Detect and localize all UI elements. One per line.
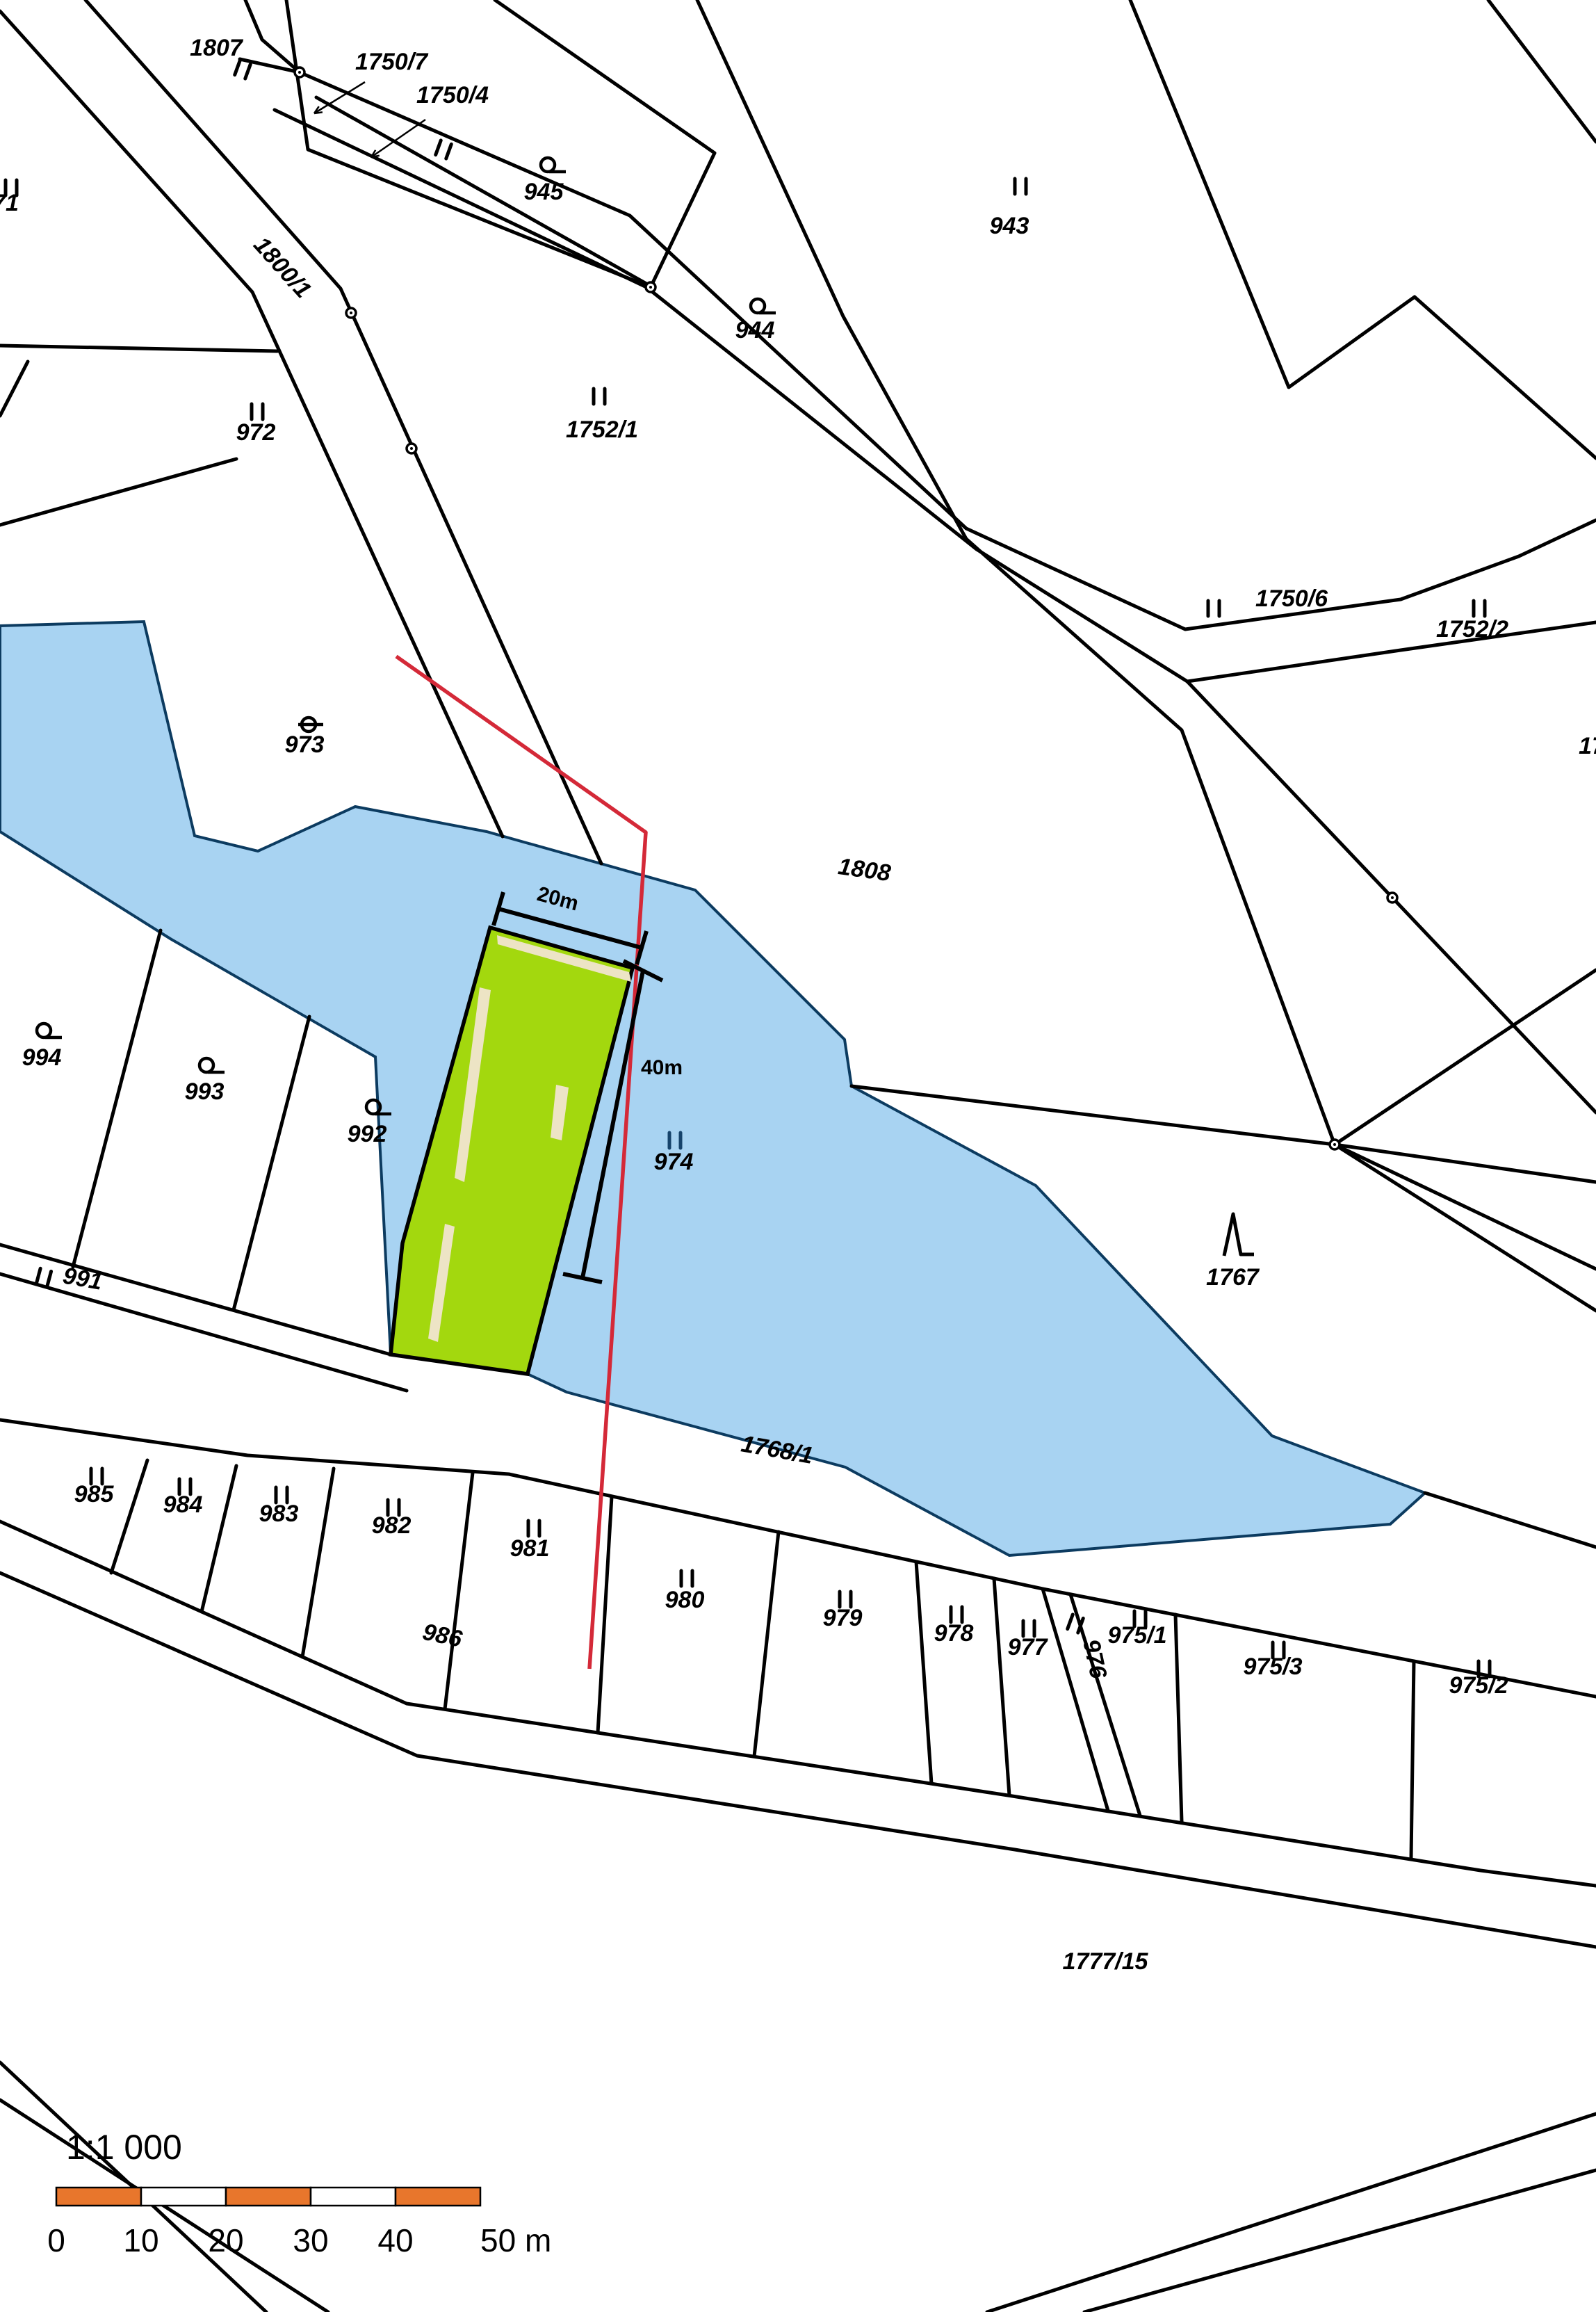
land-use-ii-icon [436,140,452,159]
parcel-label-1752-2: 1752/2 [1436,616,1508,642]
parcel-label-974: 974 [654,1149,694,1175]
boundary-line-east-2 [1335,970,1596,1145]
label-leader-arrow [371,120,425,157]
parcel-label-985: 985 [74,1481,115,1507]
parcel-972-west-boundary [0,362,28,416]
parcel-label-71: 71 [0,190,19,216]
parcel-945-boundary [286,0,715,287]
road-991-bottom-line [0,1274,407,1391]
scale-tick-label: 40 [377,2222,413,2258]
scale-bar-segment [226,2188,311,2206]
divider-979-978 [916,1562,931,1784]
divider-985-984 [111,1460,147,1573]
parcel-label-1807: 1807 [190,35,244,61]
parcel-label-943: 943 [990,213,1029,239]
parcel-label-976: 976 [1077,1637,1111,1681]
scale-tick-label: 50 m [480,2222,551,2258]
strip-1768-1-top-right-line [1425,1493,1596,1547]
scale-tick-label: 30 [293,2222,328,2258]
strip-1750-divider [316,97,646,284]
divider-982-981 [445,1473,473,1709]
orchard-symbol-icon [37,1024,62,1037]
survey-point-icon [646,282,655,292]
scale-bar-segment [141,2188,226,2206]
parcel-label-994: 994 [22,1044,62,1071]
cadastral-map-page: 20m40m 18071750/71750/4945944943711800/1… [0,0,1596,2312]
orchard-symbol-icon [541,158,566,172]
parcel-label-979: 979 [823,1605,863,1631]
road-1808-left-line [697,0,966,539]
dimension-label: 40m [641,1056,683,1079]
parcel-993-992-divider [234,1017,309,1310]
parcel-label-1750-7: 1750/7 [355,49,429,75]
parcel-label-945: 945 [524,179,564,205]
scale-tick-label: 20 [208,2222,243,2258]
parcel-label-1800-1: 1800/1 [248,232,316,303]
parcel-label-975-1: 975/1 [1107,1622,1166,1649]
parcel-label-978: 978 [934,1620,974,1647]
parcel-label-1808: 1808 [836,853,892,887]
parcel-label-973: 973 [285,731,325,758]
land-use-ii-icon [235,60,251,79]
parcel-label-1752-1: 1752/1 [566,417,638,443]
divider-978-977 [994,1578,1009,1795]
scale-bar-segment [311,2188,396,2206]
parcel-label-975-3: 975/3 [1243,1654,1302,1680]
divider-980-979 [754,1532,779,1756]
bottom-right-road-line-1 [987,2114,1596,2312]
scale-bar-segment [396,2188,480,2206]
divider-977-976 [1043,1589,1108,1811]
land-use-ii-icon [1015,179,1026,194]
land-use-ii-icon [252,404,263,419]
road-991-top-line [0,1245,391,1355]
survey-point-icon [1330,1140,1339,1149]
scale-bar: 1:1 000 01020304050 m [47,2128,551,2258]
parcel-label-986: 986 [421,1619,465,1653]
parcel-label-972: 972 [236,419,276,446]
parcel-label-984: 984 [163,1492,203,1518]
parcel-label-991: 991 [61,1263,104,1295]
parcel-972-973-boundary [0,459,236,525]
grassland-symbol-icon [298,718,323,731]
parcel-label-993: 993 [185,1078,225,1105]
scale-tick-label: 10 [123,2222,158,2258]
road-986-top-line [0,1521,1596,1886]
fan-line-3 [1335,1145,1596,1311]
survey-point-icon [407,444,416,453]
parcel-label-982: 982 [372,1512,412,1539]
divider-975-1-975-3 [1175,1615,1182,1822]
land-use-ii-icon [594,389,605,404]
land-use-ii-icon [1474,601,1485,616]
top-right-corner-boundary [1488,0,1596,142]
parcel-label-975-2: 975/2 [1449,1672,1508,1699]
parcel-label-981: 981 [510,1535,550,1562]
forest-symbol-icon [1224,1214,1254,1256]
parcel-label-992: 992 [348,1121,387,1147]
land-use-ii-icon [1208,601,1219,616]
parcel-label-1750-4: 1750/4 [416,82,489,108]
divider-975-3-975-2 [1411,1661,1414,1859]
strip-1750-upper-line [240,59,1596,629]
parcel-label-1750-6: 1750/6 [1255,585,1328,612]
divider-983-982 [302,1469,334,1657]
strip-1750-lower-line [275,110,1596,681]
survey-point-icon [346,308,356,318]
scale-tick-label: 0 [47,2222,65,2258]
parcel-943-boundary [1130,0,1596,458]
parcel-label-944: 944 [735,317,775,343]
orchard-symbol-icon [199,1058,225,1072]
orchard-symbol-icon [751,299,776,313]
map-canvas[interactable]: 20m40m 18071750/71750/4945944943711800/1… [0,0,1596,2312]
parcel-label-977: 977 [1008,1634,1049,1660]
scale-bar-segment [56,2188,141,2206]
bottom-right-road-line-2 [1084,2170,1596,2312]
parcel-994-993-divider [73,930,161,1267]
road-1808-right-line [966,539,1335,1145]
land-use-ii-icon [681,1571,692,1586]
parcel-label-980: 980 [665,1587,705,1613]
survey-point-icon [295,67,304,77]
parcel-label-983: 983 [259,1501,299,1527]
parcel-label-1777-15: 1777/15 [1063,1948,1149,1975]
parcel-label-17: 17 [1579,733,1596,759]
survey-point-icon [1387,893,1397,903]
scale-ratio-text: 1:1 000 [66,2128,182,2167]
divider-984-983 [202,1466,236,1612]
parcel-972-top-boundary [0,346,277,351]
parcel-label-1767: 1767 [1206,1264,1260,1291]
land-use-ii-icon [528,1521,539,1536]
